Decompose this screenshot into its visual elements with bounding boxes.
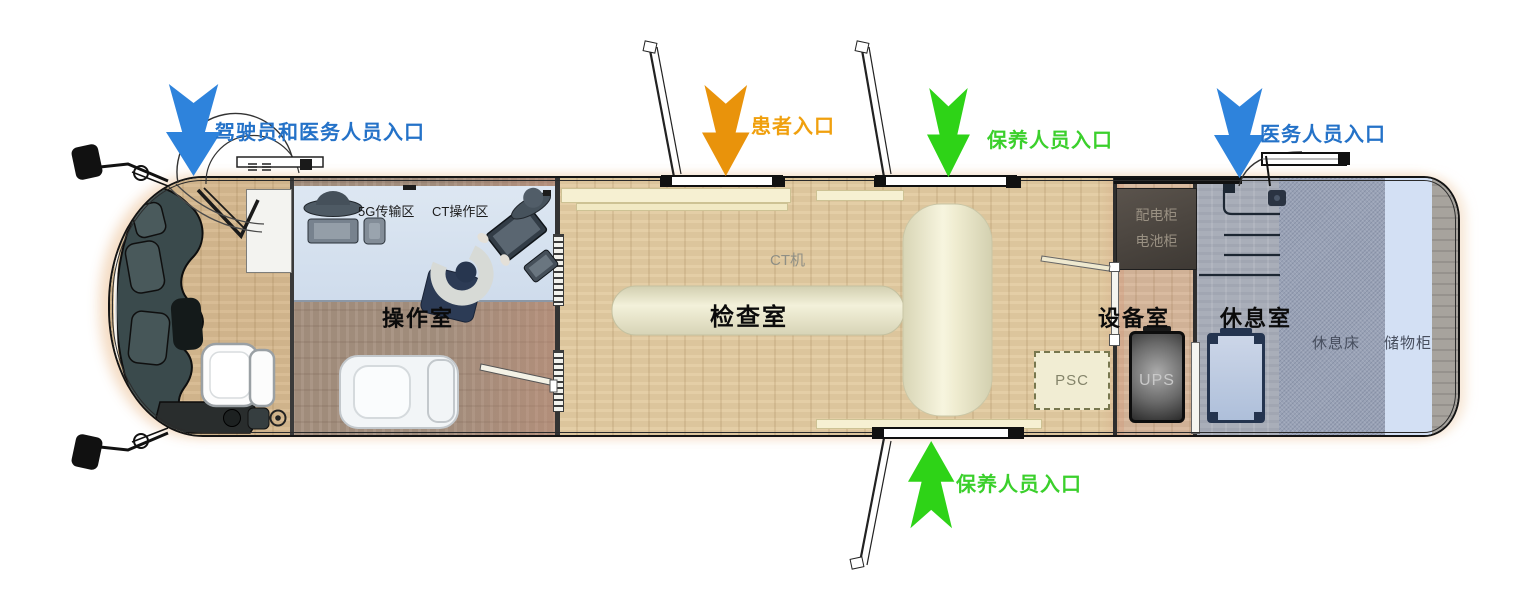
zone-5g-label: 5G传输区 <box>358 201 414 220</box>
ct-machine-label: CT机 <box>770 249 805 270</box>
patient-entry-step <box>576 203 788 211</box>
front-cabinet <box>246 189 292 273</box>
observation-window-bottom <box>553 350 564 412</box>
rest-room-bed <box>1207 333 1265 423</box>
psc-label: PSC <box>1036 353 1108 408</box>
reinforced-top-wall <box>1114 178 1242 184</box>
maintenance-entry-platform-top <box>816 190 904 201</box>
power-distribution-cabinet: 配电柜 电池柜 <box>1116 188 1197 270</box>
maintenance-door-bottom <box>850 427 1024 569</box>
door-gap-equipment-rest <box>1191 342 1200 434</box>
bed-corner <box>1254 335 1263 344</box>
ups-label: UPS <box>1132 372 1182 390</box>
battery-cabinet-label: 电池柜 <box>1117 231 1196 251</box>
equipment-room-label: 设备室 <box>1088 301 1180 333</box>
psc-unit: PSC <box>1034 351 1110 410</box>
operation-room-label: 操作室 <box>372 301 464 333</box>
maintenance-door-top <box>855 41 1021 188</box>
operator-desk-area <box>293 186 555 302</box>
rear-deck <box>1432 178 1460 437</box>
mobile-ct-vehicle-floor-plan: 配电柜 电池柜 UPS PSC <box>0 0 1538 596</box>
observation-window-top <box>553 234 564 306</box>
medical-entrance-label: 医务人员入口 <box>1260 118 1386 147</box>
storage-cabinet-strip <box>1385 178 1432 437</box>
bed-corner <box>1209 335 1218 344</box>
rest-room-label: 休息室 <box>1210 301 1302 333</box>
bed-corner <box>1209 412 1218 421</box>
driver-entrance-label: 驾驶员和医务人员入口 <box>215 116 425 145</box>
zone-ct-ops-label: CT操作区 <box>432 201 488 220</box>
examination-room-label: 检查室 <box>698 297 800 332</box>
patient-entry-platform <box>561 188 791 203</box>
door-jamb <box>1109 334 1120 346</box>
driver-entrance-arrow <box>166 84 221 176</box>
medical-entrance-arrow <box>1214 88 1265 178</box>
storage-cabinet-label: 储物柜 <box>1372 332 1444 353</box>
rest-bed-label: 休息床 <box>1300 332 1372 353</box>
power-cabinet-label: 配电柜 <box>1117 205 1196 225</box>
maintenance-entrance-arrow-bottom <box>908 441 954 528</box>
maintenance-entrance-label-top: 保养人员入口 <box>987 124 1113 153</box>
bed-corner <box>1254 412 1263 421</box>
ups-unit: UPS <box>1129 331 1185 423</box>
vehicle-body: 配电柜 电池柜 UPS PSC <box>108 176 1460 437</box>
door-jamb <box>1109 262 1120 272</box>
maintenance-entry-platform-bottom <box>816 419 1042 429</box>
maintenance-entrance-arrow-top <box>927 88 970 177</box>
patient-entrance-arrow <box>702 85 750 176</box>
maintenance-entrance-label-bottom: 保养人员入口 <box>956 468 1082 497</box>
patient-entrance-label: 患者入口 <box>751 110 835 139</box>
